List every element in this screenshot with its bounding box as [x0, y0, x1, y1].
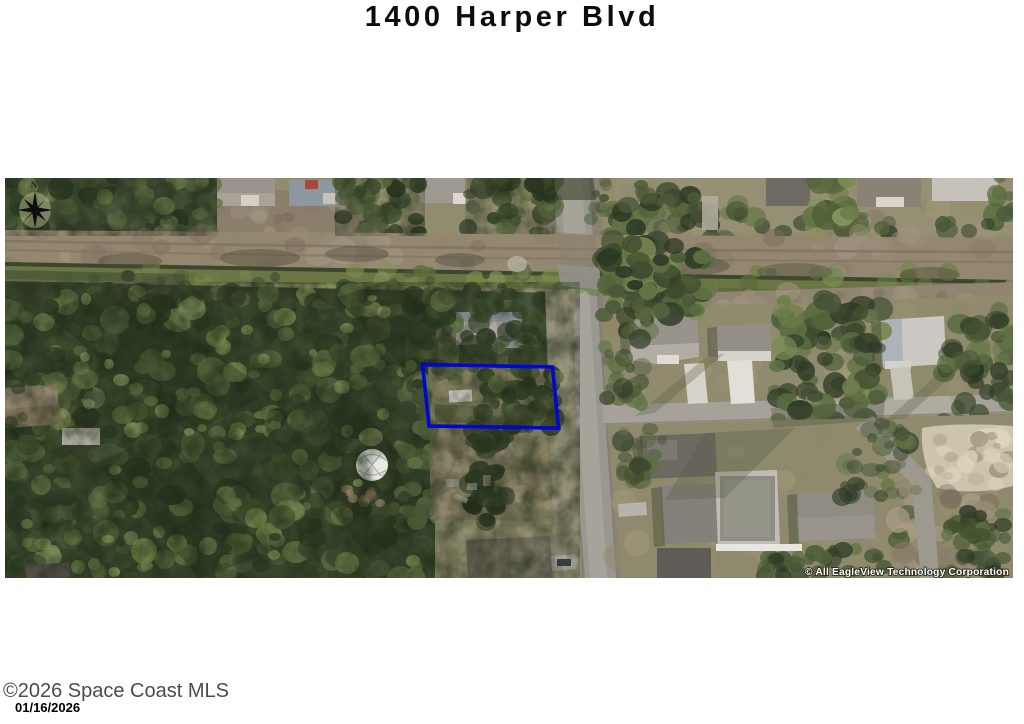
svg-text:N: N [31, 180, 38, 190]
svg-text:© All EagleView Technology Cor: © All EagleView Technology Corporation [805, 567, 1009, 578]
